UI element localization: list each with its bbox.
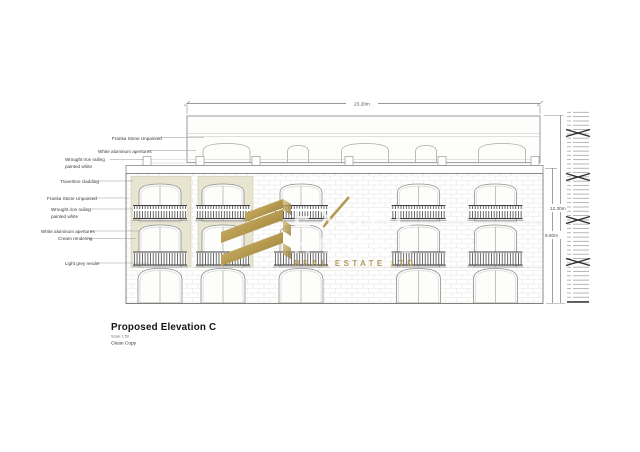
bay2-upper-window bbox=[195, 184, 251, 221]
drawing-scale-note: Scale 1:50 bbox=[111, 335, 129, 339]
watermark-brand: EXCEL bbox=[293, 203, 418, 233]
vertical-scale-bar bbox=[566, 110, 590, 303]
bay5-upper-window bbox=[468, 184, 524, 221]
watermark-tagline: REAL ESTATE LTD bbox=[294, 259, 416, 268]
annotation-label: Wrought iron railing bbox=[65, 157, 105, 162]
annotation-label: Cream rendering bbox=[58, 236, 93, 241]
annotation-label: White aluminum apertures bbox=[98, 149, 152, 154]
total-height-dimension-label: 12.30m bbox=[550, 206, 566, 211]
annotation-label: painted white bbox=[65, 164, 93, 169]
drawing-copy-note: Clean Copy bbox=[111, 341, 137, 347]
drawing-title: Proposed Elevation C bbox=[111, 322, 216, 333]
top-width-dimension-label: 23.20m bbox=[354, 102, 370, 107]
title-block: Proposed Elevation C Scale 1:50 Clean Co… bbox=[111, 322, 216, 347]
top-dimension: 23.20m bbox=[184, 99, 543, 114]
annotation-label: Light grey render bbox=[65, 261, 100, 266]
bay2-ground-arch bbox=[201, 269, 245, 304]
watermark-brand-line2: HOMES bbox=[293, 231, 422, 259]
penthouse-level bbox=[187, 116, 540, 163]
bay5-ground-arch bbox=[474, 269, 518, 304]
annotation-label: Travertine cladding bbox=[60, 179, 99, 184]
annotation-label: painted white bbox=[51, 214, 79, 219]
annotation-label: White aluminum apertures bbox=[41, 229, 95, 234]
bay1-upper-window bbox=[132, 184, 188, 221]
bay4-ground-arch bbox=[397, 269, 441, 304]
cornice-band bbox=[126, 166, 543, 174]
annotation-label: Franka Stone Unpainted bbox=[47, 196, 97, 201]
bay1-middle-window bbox=[132, 225, 188, 267]
elevation-drawing-sheet: EXCEL HOMES REAL ESTATE LTD 23.20m 12.30… bbox=[0, 0, 640, 452]
bay3-ground-arch bbox=[279, 269, 323, 304]
annotation-label: Wrought iron railing bbox=[51, 207, 91, 212]
annotation-label: Franka Stone Unpainted bbox=[112, 136, 162, 141]
right-dimensions: 12.30m 8.90m bbox=[544, 115, 569, 304]
elevation-drawing: EXCEL HOMES REAL ESTATE LTD 23.20m 12.30… bbox=[0, 0, 640, 452]
bay1-ground-arch bbox=[138, 269, 182, 304]
facade-height-dimension-label: 8.90m bbox=[545, 233, 558, 238]
bay5-middle-window bbox=[468, 225, 524, 267]
